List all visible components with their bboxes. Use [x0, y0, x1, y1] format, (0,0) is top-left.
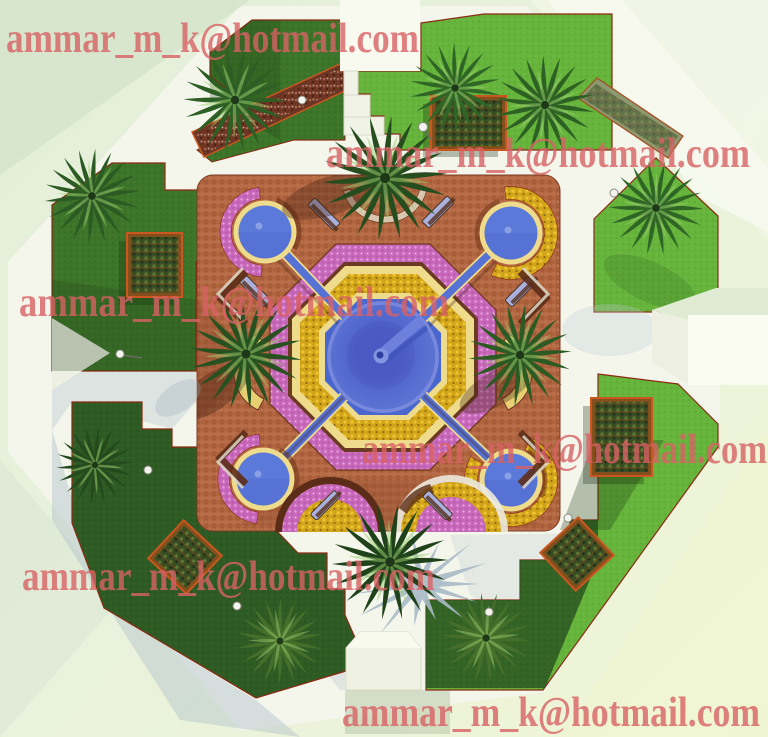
svg-text:ammar_m_k@hotmail.com: ammar_m_k@hotmail.com — [22, 554, 435, 600]
svg-text:ammar_m_k@hotmail.com: ammar_m_k@hotmail.com — [326, 131, 750, 177]
svg-text:ammar_m_k@hotmail.com: ammar_m_k@hotmail.com — [362, 427, 767, 473]
svg-text:ammar_m_k@hotmail.com: ammar_m_k@hotmail.com — [342, 690, 760, 736]
svg-text:ammar_m_k@hotmail.com: ammar_m_k@hotmail.com — [6, 16, 419, 62]
svg-text:ammar_m_k@hotmail.com: ammar_m_k@hotmail.com — [19, 280, 449, 326]
